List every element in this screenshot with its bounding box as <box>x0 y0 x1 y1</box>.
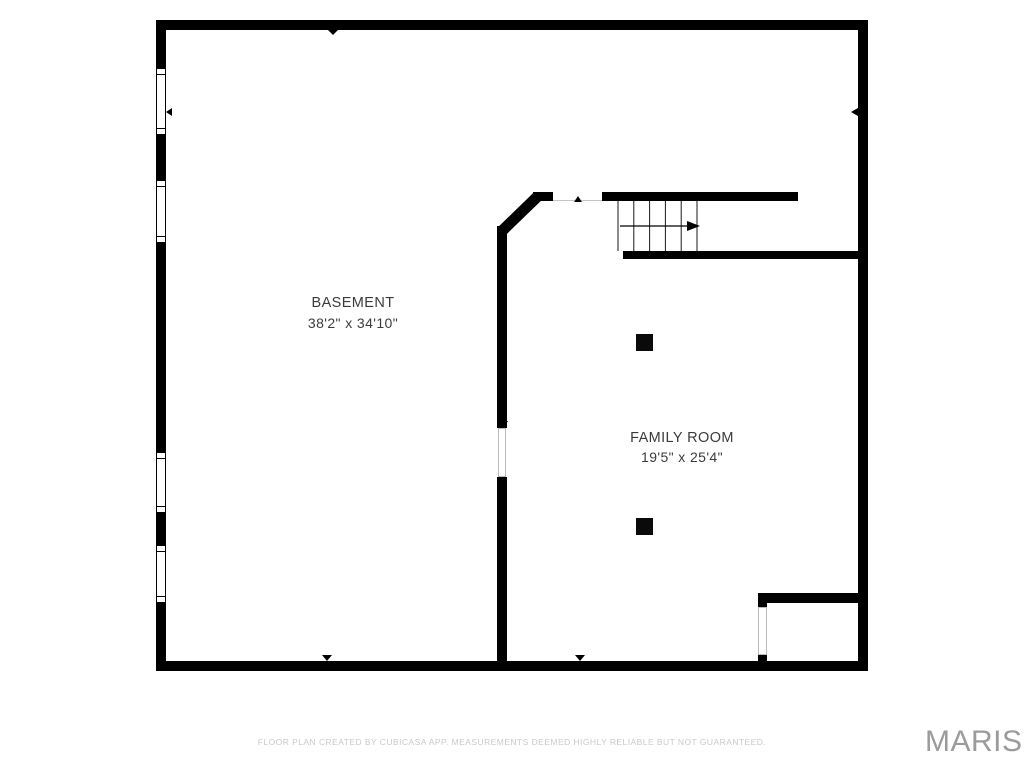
floor-plan-disclaimer: FLOOR PLAN CREATED BY CUBICASA APP. MEAS… <box>0 737 1024 747</box>
wall-marker-top-icon <box>328 30 338 35</box>
window-3 <box>157 453 166 513</box>
diagonal-wall <box>503 197 537 230</box>
basement-room-dimensions: 38'2" x 34'10" <box>308 315 398 331</box>
wall-marker-bottom-right-icon <box>575 655 585 661</box>
outer-wall-right <box>858 20 868 671</box>
floor-plan-drawing <box>0 0 1024 768</box>
closet-jamb-bottom <box>758 655 767 671</box>
floor-plan-page: BASEMENT 38'2" x 34'10" FAMILY ROOM 19'5… <box>0 0 1024 768</box>
family-room-dimensions: 19'5" x 25'4" <box>641 449 723 465</box>
window-4 <box>157 546 166 603</box>
support-column-1 <box>636 334 653 351</box>
window-1 <box>157 69 166 135</box>
wall-marker-right-icon <box>851 108 858 116</box>
closet-wall-top <box>758 593 868 603</box>
interior-wall-lower <box>497 477 507 671</box>
maris-logo: MARIS <box>925 725 1023 759</box>
stairwell-wall-bottom <box>623 251 868 259</box>
doorway-marker-icon <box>574 196 582 202</box>
stairwell-wall-top <box>602 192 798 201</box>
stair-direction-arrow-icon <box>620 221 700 231</box>
wall-marker-bottom-left-icon <box>322 655 332 661</box>
support-column-2 <box>636 518 653 535</box>
outer-wall-top <box>156 20 868 30</box>
interior-wall-opening <box>499 429 506 477</box>
family-room-label: FAMILY ROOM <box>630 430 734 446</box>
closet-opening <box>759 608 767 655</box>
basement-room-label: BASEMENT <box>312 295 395 311</box>
window-2 <box>157 181 166 243</box>
wall-marker-left-icon <box>166 108 172 116</box>
interior-wall-upper <box>497 226 507 428</box>
closet-jamb-top <box>758 593 767 607</box>
